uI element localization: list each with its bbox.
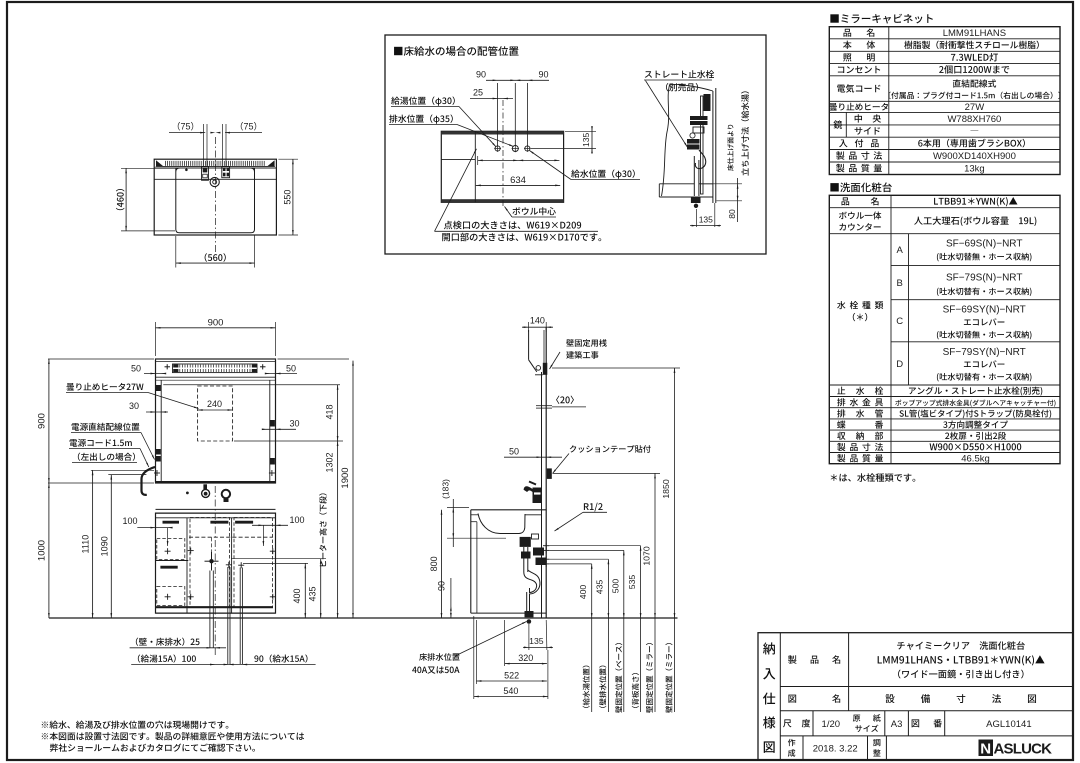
- svg-text:1000: 1000: [37, 540, 48, 561]
- svg-text:A: A: [897, 245, 904, 256]
- svg-text:SF−79SY(N)−NRT: SF−79SY(N)−NRT: [943, 347, 1026, 358]
- svg-text:1090: 1090: [99, 536, 109, 556]
- svg-text:400: 400: [578, 585, 588, 600]
- svg-text:1302: 1302: [324, 452, 334, 472]
- svg-text:SF−69SY(N)−NRT: SF−69SY(N)−NRT: [943, 305, 1026, 316]
- svg-text:2018. 3.22: 2018. 3.22: [813, 744, 858, 755]
- svg-text:90: 90: [538, 70, 548, 80]
- svg-text:1070: 1070: [641, 546, 651, 565]
- svg-text:140: 140: [530, 315, 545, 325]
- svg-text:800: 800: [429, 556, 439, 571]
- svg-text:D: D: [896, 359, 903, 370]
- svg-text:SF−79S(N)−NRT: SF−79S(N)−NRT: [946, 272, 1023, 283]
- svg-text:46.5kg: 46.5kg: [961, 453, 990, 464]
- svg-text:13kg: 13kg: [964, 163, 985, 174]
- svg-text:W788XH760: W788XH760: [947, 114, 1001, 125]
- svg-text:320: 320: [518, 653, 533, 663]
- svg-text:30: 30: [289, 419, 299, 429]
- svg-text:240: 240: [207, 399, 222, 409]
- svg-text:80: 80: [727, 209, 737, 219]
- svg-text:400: 400: [292, 588, 302, 603]
- svg-text:100: 100: [289, 515, 304, 525]
- svg-text:50: 50: [509, 446, 519, 456]
- svg-text:1110: 1110: [81, 535, 91, 554]
- svg-text:418: 418: [324, 404, 334, 419]
- svg-text:90: 90: [437, 581, 447, 591]
- svg-text:100: 100: [122, 516, 137, 526]
- svg-text:1900: 1900: [340, 467, 351, 488]
- svg-text:1/20: 1/20: [822, 719, 841, 730]
- svg-text:B: B: [897, 278, 903, 289]
- svg-text:50: 50: [131, 363, 141, 373]
- svg-text:435: 435: [595, 580, 605, 595]
- svg-text:135: 135: [529, 636, 544, 646]
- svg-text:435: 435: [307, 586, 317, 601]
- svg-text:634: 634: [510, 175, 526, 186]
- svg-text:27W: 27W: [965, 102, 985, 113]
- svg-text:540: 540: [503, 686, 518, 696]
- svg-text:900: 900: [37, 413, 48, 429]
- svg-text:LMM91LHANS: LMM91LHANS: [943, 28, 1006, 39]
- svg-text:W900XD140XH900: W900XD140XH900: [933, 151, 1016, 162]
- svg-text:522: 522: [504, 670, 519, 680]
- svg-text:135: 135: [699, 215, 713, 225]
- svg-text:1850: 1850: [661, 479, 671, 498]
- svg-text:N: N: [980, 741, 991, 758]
- svg-text:135: 135: [581, 133, 591, 147]
- svg-text:(183): (183): [441, 479, 451, 499]
- svg-text:25: 25: [473, 88, 483, 98]
- svg-text:A3: A3: [891, 719, 903, 730]
- svg-text:550: 550: [282, 190, 292, 205]
- svg-text:ASLUCK: ASLUCK: [994, 741, 1053, 758]
- svg-text:500: 500: [610, 579, 620, 594]
- svg-text:（75）: （75）: [234, 122, 262, 132]
- svg-text:C: C: [896, 316, 903, 327]
- svg-text:50: 50: [286, 363, 296, 373]
- svg-text:30: 30: [129, 401, 139, 411]
- svg-text:（75）: （75）: [171, 122, 199, 132]
- svg-text:AGL10141: AGL10141: [986, 719, 1031, 730]
- svg-text:90: 90: [476, 70, 486, 80]
- svg-text:900: 900: [208, 318, 224, 329]
- svg-text:535: 535: [627, 575, 637, 590]
- svg-text:SF−69S(N)−NRT: SF−69S(N)−NRT: [946, 239, 1023, 250]
